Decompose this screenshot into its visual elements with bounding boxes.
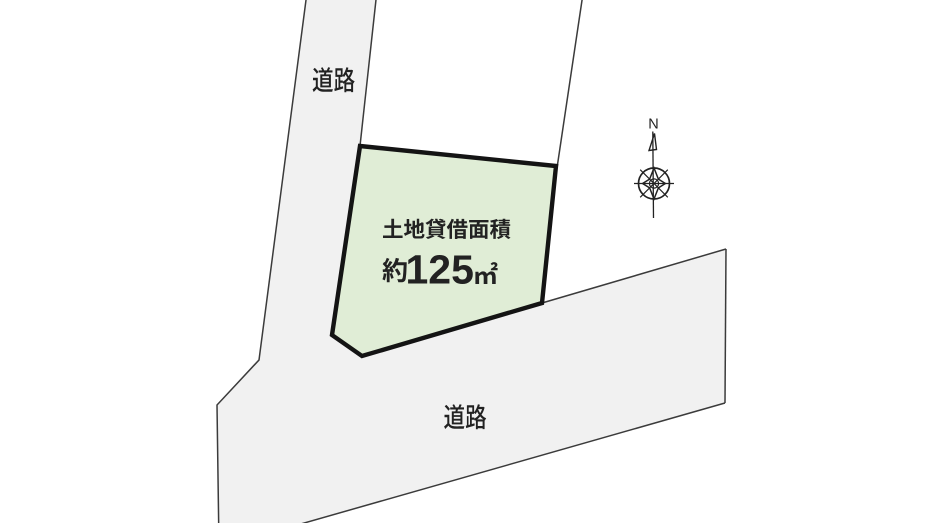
svg-text:125: 125 — [406, 247, 474, 293]
svg-text:N: N — [648, 117, 658, 133]
